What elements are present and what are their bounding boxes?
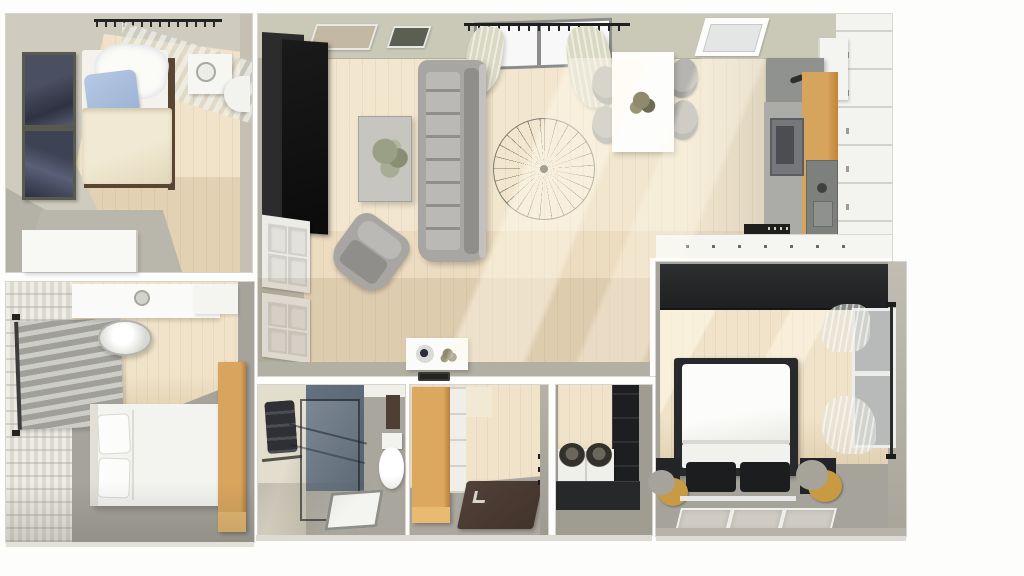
exterior-wall-line bbox=[656, 536, 906, 541]
sheer-curtain bbox=[822, 304, 870, 352]
hall-wardrobe bbox=[412, 387, 450, 523]
blinds-bracket bbox=[12, 430, 20, 436]
wall-frame bbox=[386, 26, 431, 48]
exterior-wall-line bbox=[256, 535, 652, 541]
room-pantry bbox=[556, 385, 652, 535]
floor-plan-canvas bbox=[0, 0, 1024, 576]
gold-sconce-lamp bbox=[658, 478, 688, 506]
sofa bbox=[418, 60, 486, 262]
console-table bbox=[406, 338, 468, 370]
black-base-band bbox=[556, 481, 640, 510]
rod-finial bbox=[886, 302, 896, 307]
bed-duvet bbox=[682, 364, 790, 444]
counter-dots bbox=[686, 245, 856, 248]
bed bbox=[82, 50, 182, 190]
brown-cabinet bbox=[386, 395, 400, 429]
dresser bbox=[22, 230, 136, 272]
basket bbox=[559, 443, 585, 467]
room-bedroom-bottom-left bbox=[6, 282, 254, 542]
sink-unit bbox=[806, 160, 838, 238]
skylight bbox=[695, 18, 770, 56]
decor-bowl bbox=[416, 345, 434, 363]
curtain-rod-vertical bbox=[890, 306, 893, 456]
faucet bbox=[134, 290, 150, 306]
sink-basin bbox=[813, 201, 833, 227]
round-stool bbox=[98, 320, 152, 356]
basket bbox=[586, 443, 612, 467]
black-shelving bbox=[612, 385, 639, 491]
carpet-shadow bbox=[6, 482, 254, 542]
bed-bench bbox=[680, 496, 796, 501]
tv-screen bbox=[282, 39, 328, 234]
kitchen-floor-shadow bbox=[686, 58, 770, 236]
rod-finial bbox=[886, 454, 896, 459]
blinds-bracket bbox=[12, 314, 20, 320]
bedroom1-right-wall bbox=[240, 14, 252, 272]
room-bathroom bbox=[258, 385, 405, 535]
island-counter bbox=[656, 234, 892, 259]
sofa-back bbox=[464, 68, 479, 254]
sofa-cushions bbox=[426, 72, 460, 250]
room-bedroom-top-left bbox=[6, 14, 252, 272]
sofa-arm bbox=[479, 64, 486, 258]
table-lamp bbox=[196, 62, 216, 82]
hall-right-wall bbox=[540, 385, 548, 535]
black-pillow bbox=[686, 462, 736, 492]
decor-plant bbox=[438, 344, 460, 366]
cooktop-knobs bbox=[768, 227, 788, 230]
tv-wall-unit bbox=[262, 32, 328, 235]
oven-glass bbox=[776, 126, 794, 164]
gold-sconce-lamp bbox=[808, 470, 842, 502]
pillow bbox=[97, 413, 131, 455]
white-shelf bbox=[194, 284, 238, 314]
black-pillow bbox=[740, 462, 790, 492]
oven bbox=[770, 118, 804, 176]
cooktop-strip bbox=[744, 224, 790, 234]
wall-art-frame bbox=[22, 52, 76, 128]
door-mat bbox=[457, 481, 543, 529]
room-kitchen bbox=[656, 14, 892, 258]
curtain-rod-rings bbox=[96, 22, 220, 27]
glass-shelf-line bbox=[289, 423, 367, 444]
glass-shelf-line bbox=[291, 444, 365, 464]
potted-plant bbox=[366, 130, 416, 186]
floor-shadow bbox=[258, 483, 405, 535]
wardrobe-base bbox=[412, 507, 450, 523]
hall-shelving bbox=[450, 387, 466, 493]
chandelier bbox=[493, 118, 595, 220]
centerpiece-plant bbox=[626, 84, 660, 120]
wall-art-frame bbox=[22, 128, 76, 200]
bottom-wall-band bbox=[656, 528, 906, 536]
light-patch bbox=[466, 387, 492, 417]
skylight-glass bbox=[703, 24, 763, 52]
dark-wardrobe bbox=[660, 264, 888, 308]
bed-duvet bbox=[82, 108, 172, 184]
faucet bbox=[817, 183, 827, 193]
door-handle bbox=[472, 491, 487, 503]
exterior-wall-line bbox=[6, 542, 254, 547]
room-bedroom-bottom-right bbox=[656, 262, 906, 536]
window-mullion bbox=[855, 371, 893, 376]
decor-tray bbox=[418, 372, 450, 381]
room-entry-hall bbox=[410, 385, 548, 535]
